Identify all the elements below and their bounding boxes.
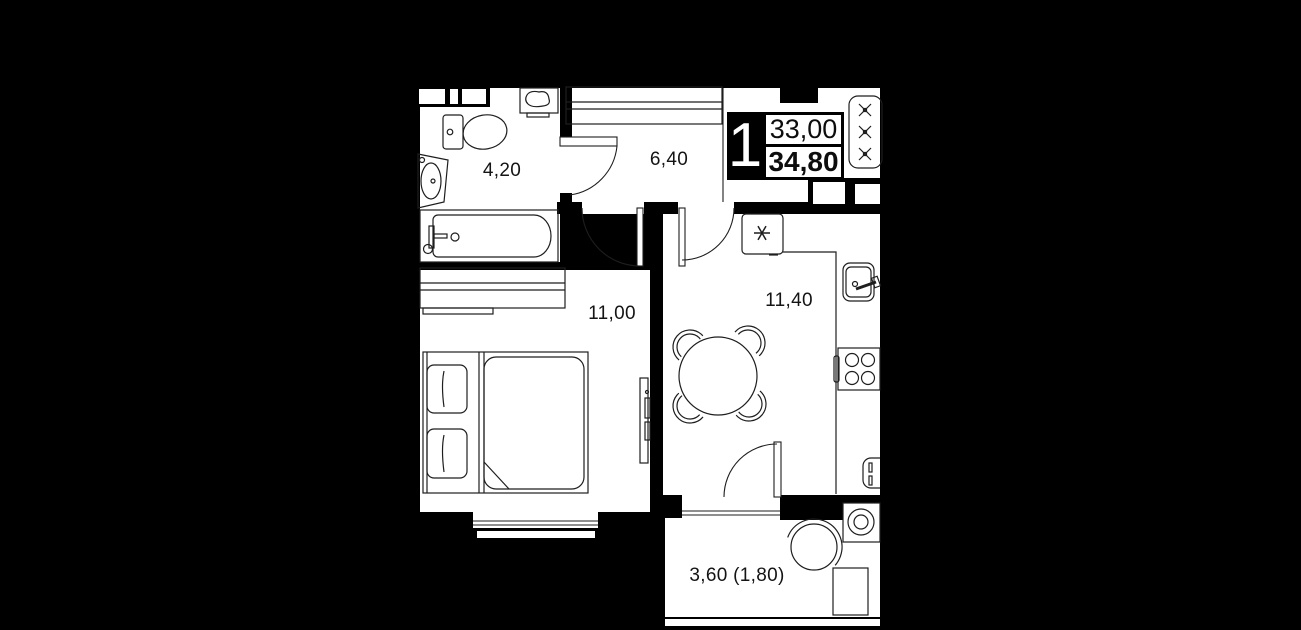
area-reduced-value: 34,80 (763, 144, 844, 180)
vent-shaft-slot (419, 89, 445, 104)
wall-stub-top-right (780, 82, 818, 103)
wall-balcony-left (650, 503, 665, 630)
rooms-count-badge: 1 (727, 112, 763, 180)
area-values: 33,00 34,80 (763, 112, 844, 180)
balcony-glazing-strip (665, 619, 880, 626)
hallway-area-label: 6,40 (650, 149, 688, 171)
wall-right (880, 82, 895, 630)
wall-kitchen-balcony-right (780, 495, 880, 503)
balcony-area-label: 3,60 (1,80) (689, 565, 784, 587)
balcony-door-leaf (774, 442, 781, 497)
bathroom-area-label: 4,20 (483, 160, 521, 182)
wall-hall-band-left (557, 202, 582, 214)
bedroom-window-outer (473, 512, 598, 528)
vent-shaft-slot (450, 89, 458, 104)
wall-hall-band-mid (644, 202, 678, 214)
vent-shaft-slot (462, 89, 486, 104)
floorplan-canvas: 1 33,00 34,80 4,20 6,40 11,00 11,40 3,60… (0, 0, 1301, 630)
area-total-value: 33,00 (763, 112, 844, 147)
unit-info-badge: 1 33,00 34,80 (727, 112, 844, 180)
entrance-door-panel (813, 182, 845, 204)
wall-kitchen-balcony-left (650, 495, 682, 503)
bedroom-area-label: 11,00 (588, 303, 636, 325)
kitchen-door-leaf (679, 208, 685, 266)
dining-table (679, 337, 757, 415)
floorplan-drawing (0, 0, 1301, 630)
bedroom-door-leaf (637, 208, 643, 266)
kitchen-area-label: 11,40 (765, 290, 813, 312)
wall-balcony-seg-right (780, 503, 843, 520)
wall-bedroom-kitchen (650, 202, 663, 512)
entrance-door-panel (855, 184, 880, 204)
wall-left (405, 82, 420, 512)
bedroom-door-arc (582, 208, 640, 266)
bathroom-door-leaf (560, 137, 617, 146)
bedroom-door-opening (582, 202, 644, 214)
bedroom-window-sill (477, 531, 595, 538)
wall-bath-bedroom (405, 262, 572, 270)
kitchen-door-opening (678, 202, 734, 214)
